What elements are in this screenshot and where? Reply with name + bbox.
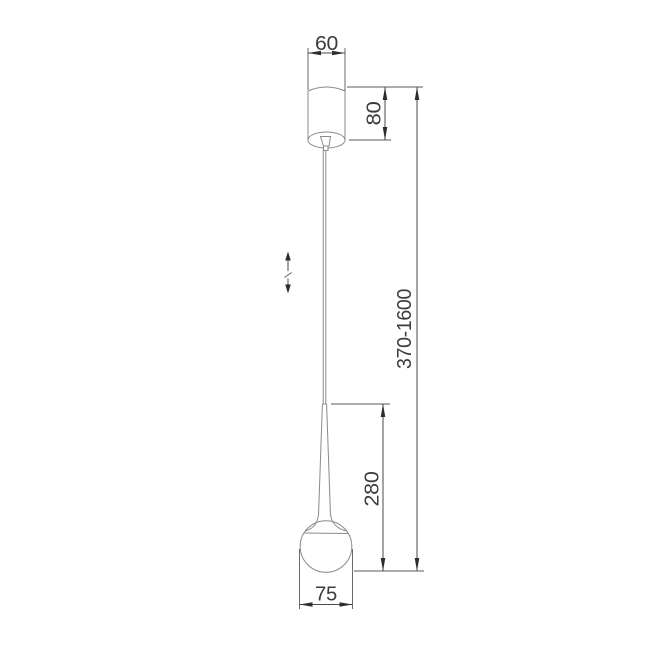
sphere-joint-line	[304, 533, 348, 534]
arrow-left	[300, 602, 313, 607]
canopy-top-arc	[308, 87, 345, 91]
adjust-down-arrowhead	[285, 285, 291, 294]
suspension-cable	[323, 151, 326, 405]
cable-grip	[321, 137, 331, 147]
stem-left-edge	[305, 404, 322, 531]
arrow-up	[415, 87, 420, 100]
dimension-sphere-diameter: 75	[300, 549, 353, 609]
arrow-down	[415, 558, 420, 571]
technical-drawing: 60 80 370-1600 280	[0, 0, 650, 650]
dimension-canopy-width: 60	[308, 33, 345, 91]
dimension-body-height: 280	[331, 404, 424, 571]
height-adjustable-icon	[285, 252, 292, 294]
arrow-up	[383, 87, 388, 100]
cable-grip-neck	[324, 146, 329, 151]
sphere-diameter-label: 75	[315, 584, 337, 606]
dimension-canopy-height: 80	[347, 87, 423, 140]
stem-right-edge	[327, 404, 347, 531]
drawing-canvas: 60 80 370-1600 280	[0, 0, 650, 650]
body-height-label: 280	[362, 471, 384, 506]
overall-drop-label: 370-1600	[394, 289, 416, 369]
dimension-overall-drop: 370-1600	[394, 87, 419, 571]
adjust-slash	[285, 273, 292, 278]
arrow-right	[340, 602, 353, 607]
pendant-lamp-outline	[300, 87, 352, 572]
canopy-width-label: 60	[315, 33, 338, 55]
arrow-down	[381, 558, 386, 571]
sphere	[300, 521, 352, 573]
teardrop-stem	[305, 404, 346, 531]
arrow-down	[383, 127, 388, 140]
ball-diffuser	[300, 521, 352, 573]
canopy-height-label: 80	[364, 101, 386, 125]
ceiling-canopy	[308, 87, 345, 151]
adjust-up-arrowhead	[285, 252, 291, 261]
arrow-up	[381, 404, 386, 417]
